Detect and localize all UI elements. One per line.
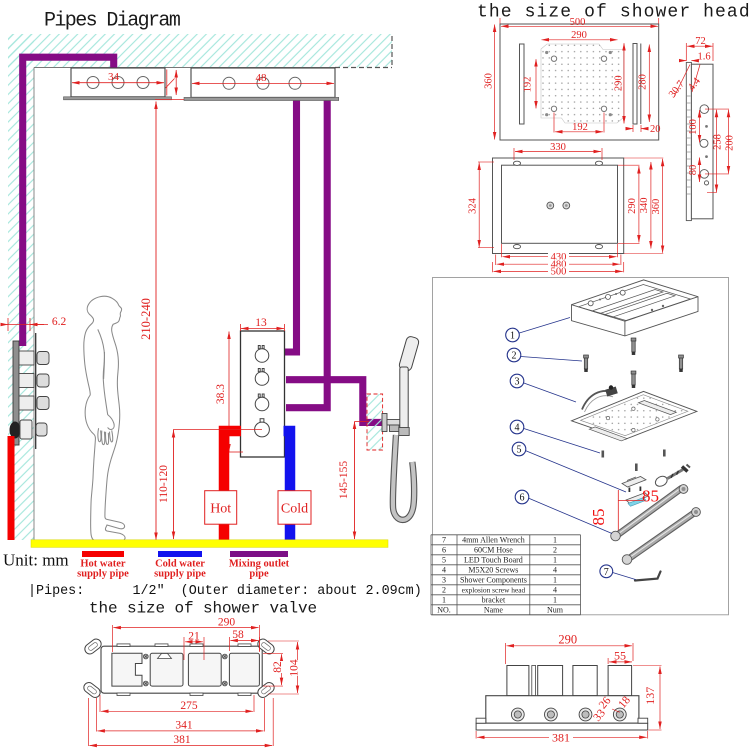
svg-text:Cold: Cold <box>281 502 308 517</box>
svg-text:341: 341 <box>175 719 193 731</box>
svg-text:72: 72 <box>695 36 706 47</box>
svg-text:85: 85 <box>589 509 608 526</box>
svg-text:4: 4 <box>553 586 557 595</box>
svg-text:5: 5 <box>442 556 446 565</box>
svg-text:Num: Num <box>547 606 564 615</box>
svg-text:30.7: 30.7 <box>667 79 687 100</box>
svg-text:360: 360 <box>484 73 495 89</box>
svg-text:137: 137 <box>643 687 657 705</box>
svg-text:58: 58 <box>232 629 244 641</box>
svg-text:5: 5 <box>517 445 522 456</box>
svg-text:1: 1 <box>510 331 515 342</box>
svg-text:1: 1 <box>553 576 557 585</box>
svg-text:13: 13 <box>255 317 267 329</box>
svg-text:500: 500 <box>570 17 586 28</box>
svg-text:200: 200 <box>725 135 736 151</box>
svg-text:Hot: Hot <box>210 502 231 517</box>
svg-text:1: 1 <box>442 596 446 605</box>
svg-text:7: 7 <box>442 536 446 545</box>
svg-text:6.2: 6.2 <box>52 316 67 328</box>
svg-text:Pipes Diagram: Pipes Diagram <box>44 10 180 33</box>
svg-text:1: 1 <box>553 596 557 605</box>
svg-text:381: 381 <box>173 734 191 746</box>
svg-text:|Pipes: 1/2" (Outer diam: |Pipes: 1/2" (Outer diameter: about 2.09… <box>28 584 422 599</box>
svg-text:290: 290 <box>558 633 577 647</box>
svg-text:the size of shower valve: the size of shower valve <box>89 600 317 618</box>
svg-text:145-155: 145-155 <box>338 461 350 500</box>
svg-text:500: 500 <box>551 267 567 278</box>
svg-text:210-240: 210-240 <box>139 298 153 340</box>
svg-text:290: 290 <box>614 75 625 91</box>
svg-text:324: 324 <box>468 197 479 214</box>
svg-text:explosion screw head: explosion screw head <box>462 586 526 595</box>
svg-text:192: 192 <box>522 77 533 93</box>
svg-text:192: 192 <box>572 122 588 133</box>
svg-text:38.3: 38.3 <box>215 384 227 404</box>
svg-text:34: 34 <box>108 71 120 83</box>
svg-text:60CM Hose: 60CM Hose <box>474 546 513 555</box>
svg-text:the size of shower head: the size of shower head <box>477 3 750 23</box>
svg-text:381: 381 <box>552 731 570 745</box>
svg-text:3: 3 <box>515 377 520 388</box>
svg-text:6: 6 <box>442 546 446 555</box>
svg-text:Shower Components: Shower Components <box>460 576 527 585</box>
svg-text:7: 7 <box>604 567 609 578</box>
svg-text:4: 4 <box>515 423 520 434</box>
svg-text:330: 330 <box>550 142 566 153</box>
svg-text:340: 340 <box>639 198 650 214</box>
svg-text:NO.: NO. <box>437 606 451 615</box>
svg-text:80: 80 <box>688 165 699 176</box>
svg-text:M5X20 Screws: M5X20 Screws <box>468 566 518 575</box>
svg-text:21: 21 <box>188 631 200 643</box>
svg-text:20: 20 <box>650 124 661 135</box>
svg-text:280: 280 <box>637 74 648 90</box>
svg-text:48: 48 <box>256 72 268 84</box>
svg-text:3: 3 <box>442 576 446 585</box>
svg-text:290: 290 <box>218 617 236 629</box>
svg-text:4: 4 <box>442 566 446 575</box>
svg-text:82: 82 <box>272 661 284 673</box>
svg-text:1: 1 <box>553 536 557 545</box>
svg-text:55: 55 <box>614 649 626 663</box>
svg-text:1.6: 1.6 <box>697 52 710 63</box>
svg-text:290: 290 <box>571 30 587 41</box>
svg-text:104: 104 <box>289 659 301 677</box>
svg-text:258: 258 <box>713 134 724 150</box>
svg-text:4mm Allen Wrench: 4mm Allen Wrench <box>462 536 525 545</box>
svg-text:Name: Name <box>484 606 504 615</box>
svg-text:100: 100 <box>688 119 699 135</box>
svg-text:2: 2 <box>442 586 446 595</box>
svg-text:supply pipe: supply pipe <box>154 569 206 580</box>
svg-text:1: 1 <box>553 556 557 565</box>
svg-text:290: 290 <box>627 198 638 214</box>
svg-text:pipe: pipe <box>249 569 269 580</box>
svg-text:bracket: bracket <box>482 596 506 605</box>
svg-text:2: 2 <box>553 546 557 555</box>
svg-text:2: 2 <box>512 351 517 362</box>
svg-text:275: 275 <box>180 700 198 712</box>
svg-text:4: 4 <box>553 566 557 575</box>
svg-text:supply pipe: supply pipe <box>77 569 129 580</box>
svg-text:6: 6 <box>520 493 525 504</box>
svg-text:Unit: mm: Unit: mm <box>3 551 69 570</box>
svg-text:LED Touch Board: LED Touch Board <box>464 556 523 565</box>
svg-text:110-120: 110-120 <box>158 465 170 503</box>
svg-text:360: 360 <box>651 199 662 215</box>
